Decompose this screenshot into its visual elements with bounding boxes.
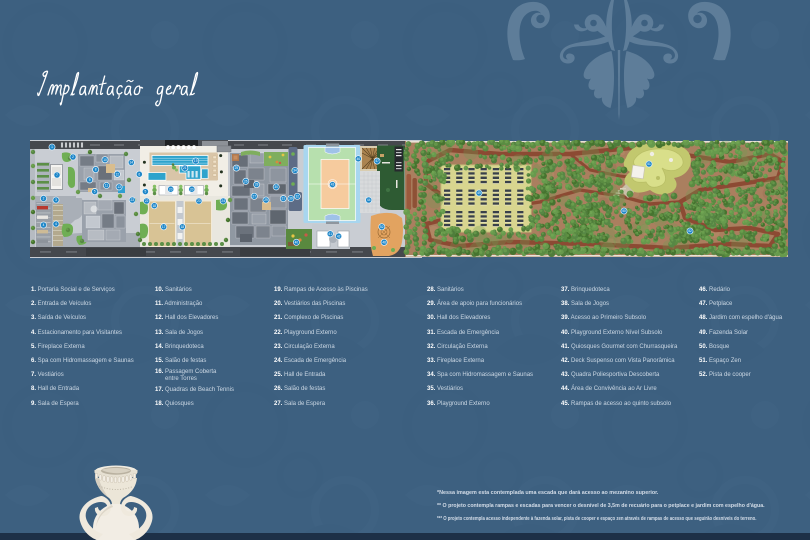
svg-text:12: 12 <box>116 172 120 176</box>
svg-text:27: 27 <box>252 194 256 198</box>
svg-text:14: 14 <box>130 161 134 165</box>
svg-text:32: 32 <box>296 194 300 198</box>
svg-text:8: 8 <box>95 168 97 172</box>
svg-text:7: 7 <box>56 173 58 177</box>
svg-text:51: 51 <box>647 162 651 166</box>
svg-text:5: 5 <box>94 190 96 194</box>
svg-text:29: 29 <box>264 198 268 202</box>
svg-text:44: 44 <box>367 198 371 202</box>
svg-text:19: 19 <box>194 159 198 163</box>
svg-text:48: 48 <box>382 240 386 244</box>
svg-text:17: 17 <box>162 225 166 229</box>
svg-text:26: 26 <box>244 179 248 183</box>
svg-text:39: 39 <box>289 197 293 201</box>
svg-text:42: 42 <box>337 234 341 238</box>
svg-text:30: 30 <box>274 185 278 189</box>
svg-text:34: 34 <box>293 169 297 173</box>
svg-text:24: 24 <box>221 199 225 203</box>
svg-text:13: 13 <box>117 185 121 189</box>
svg-text:9: 9 <box>89 178 91 182</box>
svg-text:6: 6 <box>138 172 140 176</box>
svg-text:43: 43 <box>331 183 335 187</box>
svg-text:2: 2 <box>72 155 74 159</box>
svg-text:52: 52 <box>380 225 384 229</box>
svg-text:4: 4 <box>43 223 45 227</box>
svg-text:25: 25 <box>235 166 239 170</box>
svg-text:21: 21 <box>183 166 187 170</box>
svg-text:10: 10 <box>103 158 107 162</box>
svg-text:2: 2 <box>43 197 45 201</box>
svg-text:5: 5 <box>145 190 147 194</box>
svg-text:23: 23 <box>131 198 135 202</box>
svg-text:23: 23 <box>197 199 201 203</box>
svg-text:31: 31 <box>282 197 286 201</box>
svg-text:49: 49 <box>477 191 481 195</box>
svg-text:52: 52 <box>688 229 692 233</box>
svg-text:46: 46 <box>357 157 361 161</box>
svg-text:50: 50 <box>622 209 626 213</box>
svg-text:28: 28 <box>255 183 259 187</box>
svg-text:22: 22 <box>145 199 149 203</box>
svg-text:3: 3 <box>55 198 57 202</box>
svg-text:11: 11 <box>105 184 109 188</box>
svg-text:20: 20 <box>190 187 194 191</box>
svg-text:41: 41 <box>328 232 332 236</box>
svg-text:1: 1 <box>51 145 53 149</box>
svg-text:47: 47 <box>375 159 379 163</box>
svg-text:40: 40 <box>295 240 299 244</box>
svg-text:20: 20 <box>169 187 173 191</box>
svg-text:4: 4 <box>55 222 57 226</box>
svg-text:18: 18 <box>181 225 185 229</box>
svg-text:18: 18 <box>153 204 157 208</box>
